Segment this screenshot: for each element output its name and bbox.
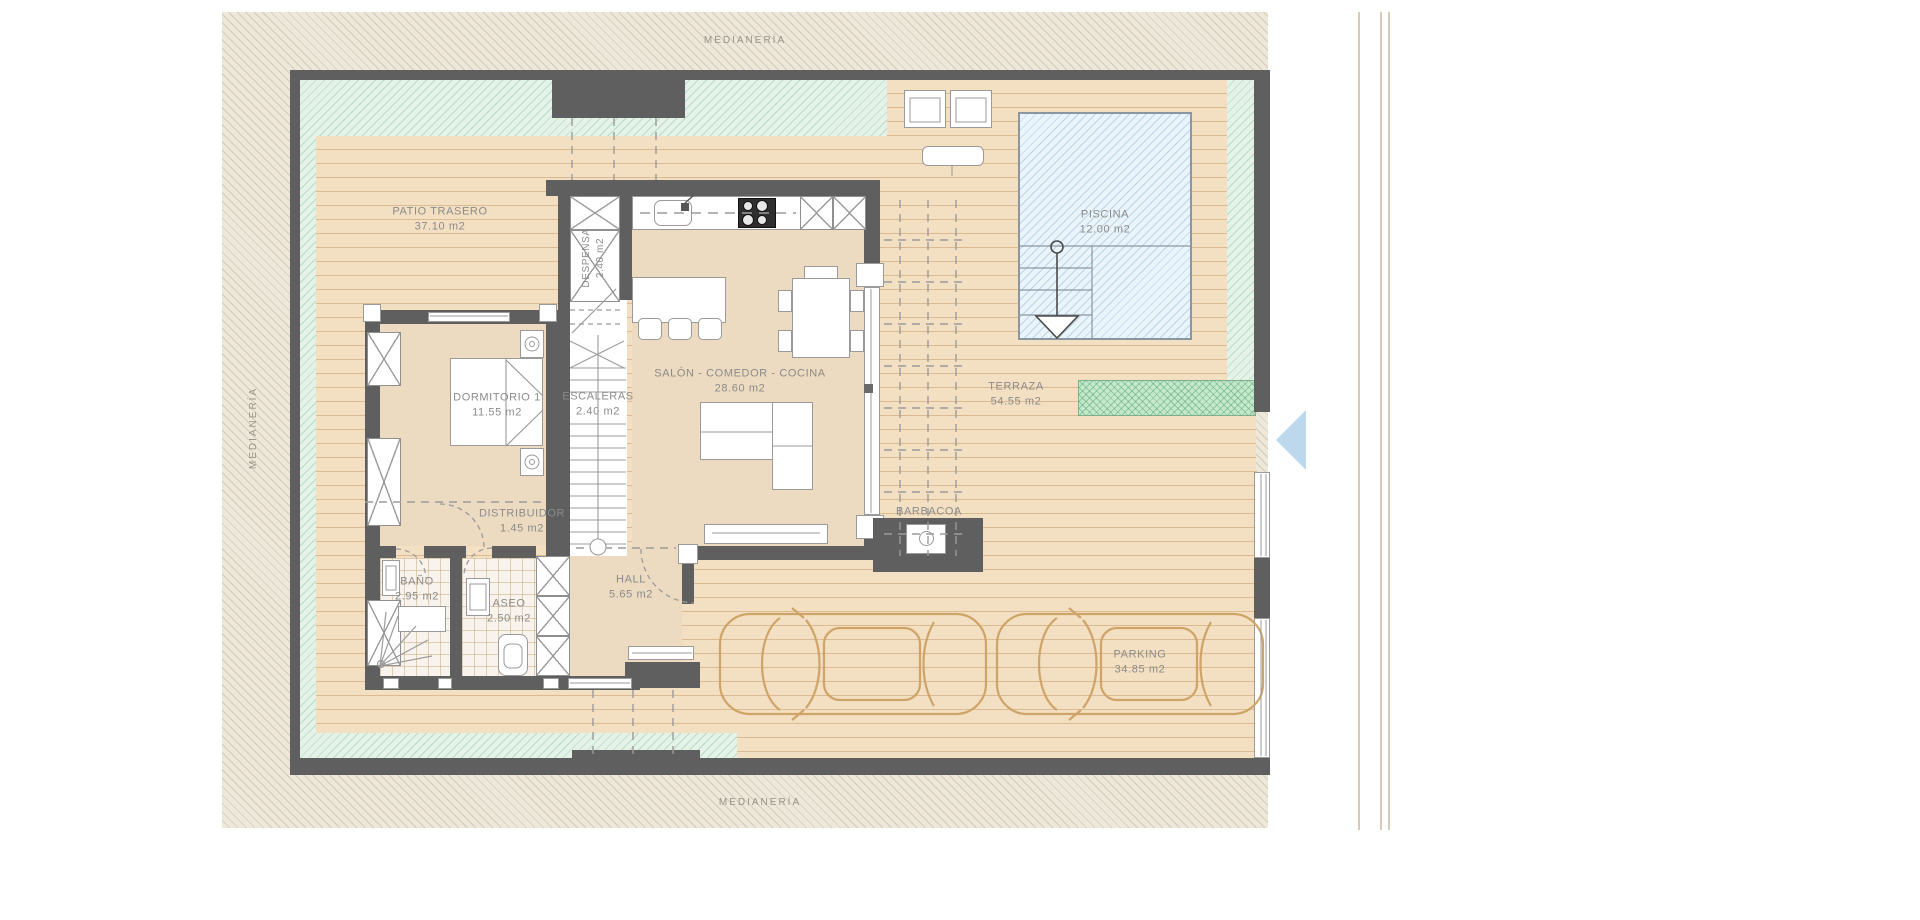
planter-bed [1078,380,1256,416]
chair [804,266,838,279]
plot-wall-bottom [290,758,1270,775]
stool [698,318,722,340]
wall-post [383,678,399,689]
room-label-aseo: ASEO2.50 m2 [487,597,531,628]
parking-gate [1254,618,1270,758]
closet [367,438,401,526]
room-label-despensa: DESPENSA2.40 m2 [580,228,608,287]
room-label-barbacoa: BARBACOA [896,504,962,519]
closet-column [536,596,570,636]
garden-strip-right [1227,80,1256,412]
plot-wall-pier [552,80,685,118]
wall-post [539,304,557,322]
wall-post [856,263,884,287]
outdoor-unit [950,90,992,128]
plot-wall-right [1254,558,1270,618]
barbecue-burner-icon [919,531,934,546]
closet [367,600,401,666]
stool [638,318,662,340]
salon-glass-door [864,287,880,515]
plot-wall-top [290,70,1270,80]
garden-strip-left [300,80,316,758]
street-line [1380,12,1382,830]
room-label-bano: BAÑO2.95 m2 [395,575,439,606]
kitchen-tall-unit [833,196,866,230]
room-label-hall: HALL5.65 m2 [609,573,653,604]
room-label-patio: PATIO TRASERO37.10 m2 [392,205,487,236]
bath-wall [424,546,466,558]
wall-post [363,304,381,322]
closet-column [536,636,570,676]
entrance-arrow-icon [1276,410,1306,470]
room-label-salon: SALÓN - COMEDOR - COCINA28.60 m2 [654,367,825,398]
room-label-distribuidor: DISTRIBUIDOR1.45 m2 [479,507,565,538]
boundary-label-left: MEDIANERÍA [247,387,261,469]
salon-wall-bottom [694,546,880,560]
closet [367,332,401,386]
bathtub [398,606,446,632]
bath-divider-wall [450,558,462,676]
wall-post [438,678,452,689]
chair [778,290,792,312]
toilet [498,634,528,676]
stairs-floor [570,335,627,556]
hall-window [628,646,694,660]
chair [850,290,864,312]
plot-wall-step [572,750,700,760]
room-label-parking: PARKING34.85 m2 [1114,648,1167,679]
boundary-label-top: MEDIANERÍA [704,34,786,48]
plot-wall-right [1254,70,1270,412]
nightstand [520,448,544,476]
bath-wall [492,546,536,558]
kitchen-tall-unit [800,196,833,230]
despensa-wall-left [558,196,570,310]
sink-icon [654,200,692,226]
despensa-wall-right [620,196,632,300]
street-line [1358,12,1360,830]
plot-wall-left [290,70,300,775]
wall-post [543,678,559,689]
chair [850,330,864,352]
outdoor-unit [904,90,946,128]
pedestrian-gate [1254,472,1270,558]
hob-icon [738,198,776,228]
chair [778,330,792,352]
bath-wall [380,546,396,558]
despensa-cabinet [570,196,620,230]
dining-table [792,278,850,358]
window [428,312,510,322]
kitchen-island [632,277,726,323]
stool [668,318,692,340]
street-line [1388,12,1390,830]
room-label-dormitorio: DORMITORIO 111.55 m2 [453,391,541,422]
sofa-chaise [772,402,813,490]
outdoor-bench [922,146,984,166]
plan-canvas: MEDIANERÍA MEDIANERÍA MEDIANERÍA PATIO T… [0,0,1920,920]
room-label-piscina: PISCINA12.00 m2 [1080,208,1131,239]
house-wall-top [546,180,880,196]
window [568,678,632,689]
closet-column [536,556,570,596]
sideboard [704,524,828,544]
boundary-label-bottom: MEDIANERÍA [719,796,801,810]
wall-post [678,544,698,564]
room-label-escaleras: ESCALERAS2.40 m2 [562,390,633,421]
room-label-terraza: TERRAZA54.55 m2 [988,380,1044,411]
nightstand [520,330,544,358]
